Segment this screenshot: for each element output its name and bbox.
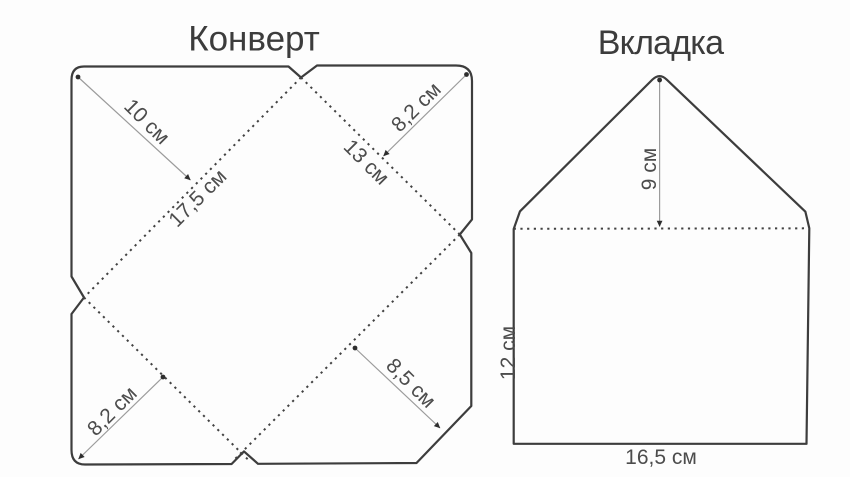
svg-text:Вкладка: Вкладка [598, 24, 724, 62]
svg-text:13 см: 13 см [339, 135, 394, 190]
svg-text:8,5 см: 8,5 см [381, 354, 440, 413]
svg-text:8,2 см: 8,2 см [387, 78, 446, 137]
svg-text:9 см: 9 см [638, 148, 661, 190]
svg-text:16,5 см: 16,5 см [625, 446, 697, 469]
svg-text:8,2 см: 8,2 см [83, 382, 142, 441]
svg-text:Конверт: Конверт [188, 20, 320, 59]
svg-text:17,5 см: 17,5 см [164, 165, 231, 232]
svg-text:12 см: 12 см [497, 326, 520, 380]
